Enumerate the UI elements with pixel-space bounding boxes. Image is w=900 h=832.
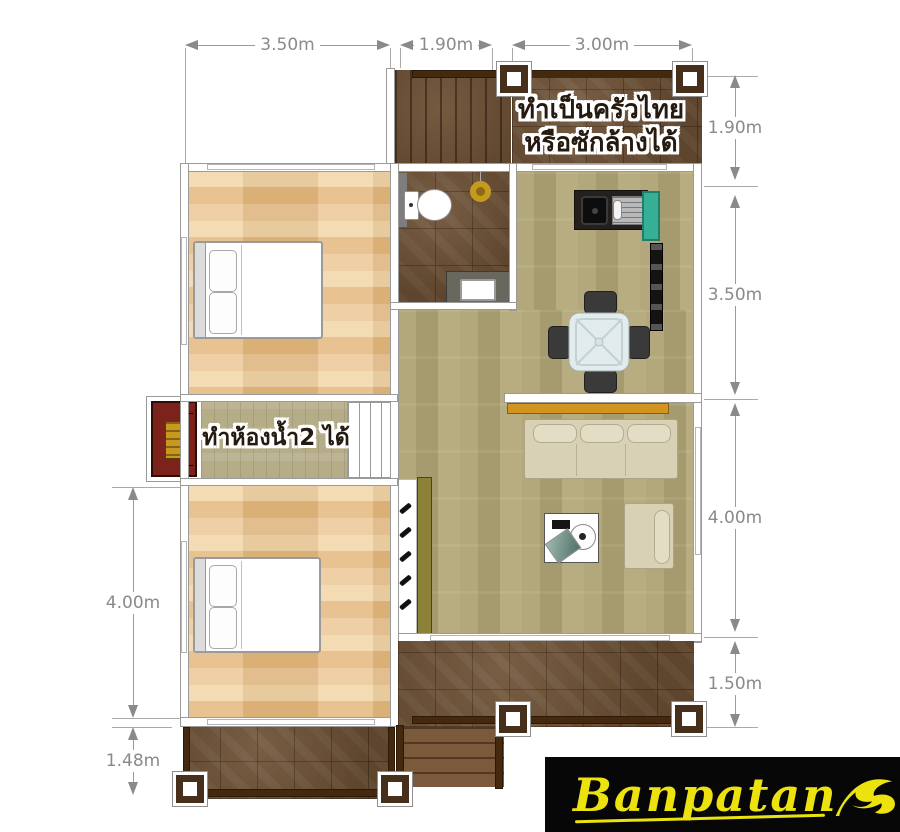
- dimension-right-3: 4.00m: [705, 403, 765, 632]
- sofa-seam: [576, 444, 577, 476]
- extension-line: [390, 48, 391, 68]
- shrine-ornament-icon: [165, 421, 181, 459]
- stair-handrail: [417, 477, 432, 644]
- dimension-right-1: 1.90m: [705, 75, 765, 180]
- extension-line: [185, 48, 186, 163]
- bed: [193, 241, 323, 339]
- armchair: [624, 503, 674, 569]
- window: [207, 719, 375, 725]
- coffee-table: [544, 513, 599, 563]
- sheet-line: [241, 561, 242, 649]
- wall-hall-bedroom2: [180, 478, 398, 486]
- wall-bathroom-bottom: [390, 302, 517, 310]
- floor-drain-icon: [470, 181, 491, 202]
- sofa-cushion: [580, 424, 624, 443]
- shrine-cabinet: [151, 401, 197, 477]
- dimension-left-1: 4.00m: [103, 487, 163, 718]
- floor-plan: 3.50m 1.90m 3.00m 1.90m 3.50m 4.00m 1.50…: [0, 0, 900, 832]
- sofa-cushion: [533, 424, 577, 443]
- dimension-label: 3.50m: [708, 284, 762, 306]
- sliding-door: [532, 164, 667, 170]
- kitchen-annotation-line1: ทำเป็นครัวไทย: [495, 94, 707, 127]
- stairs-edge: [412, 70, 506, 78]
- dimension-label: 3.50m: [255, 37, 319, 53]
- dining-chair: [627, 326, 650, 359]
- extension-line: [112, 718, 180, 719]
- window: [181, 237, 187, 345]
- wall: [386, 68, 395, 166]
- dimension-right-2: 3.50m: [705, 195, 765, 395]
- dimension-label: 4.00m: [708, 507, 762, 529]
- kitchen-annotation: ทำเป็นครัวไทย หรือซักล้างได้: [495, 94, 707, 159]
- dimension-top-3: 3.00m: [512, 37, 692, 53]
- logo-banner: Banpatan: [545, 757, 900, 832]
- deck-bottom-right: [398, 641, 694, 727]
- toilet-button: [409, 203, 413, 207]
- wall-bedroom1-hall: [180, 394, 398, 402]
- sheet-line: [241, 245, 242, 335]
- dining-table: [568, 312, 630, 372]
- extension-line: [692, 48, 693, 62]
- bathroom-annotation: ทำห้องน้ำ2 ได้: [196, 424, 356, 453]
- console-shelf: [507, 403, 669, 414]
- brand-logo: Banpatan: [545, 768, 838, 822]
- dimension-top-2: 1.90m: [400, 37, 492, 53]
- deck-railing: [412, 716, 694, 724]
- sink-basin-icon: [460, 279, 496, 301]
- armchair-back-cushion: [654, 510, 670, 564]
- window: [207, 164, 375, 170]
- dimension-label: 1.50m: [708, 673, 762, 695]
- column-post: [172, 771, 208, 807]
- exterior-stairs: [395, 70, 511, 164]
- extension-line: [704, 186, 758, 187]
- kitchen-annotation-line2: หรือซักล้างได้: [495, 127, 707, 160]
- dimension-label: 3.00m: [570, 37, 634, 53]
- extension-line: [704, 727, 758, 728]
- dimension-label: 1.48m: [106, 750, 160, 772]
- dimension-top-1: 3.50m: [185, 37, 390, 53]
- dimension-label: 4.00m: [106, 592, 160, 614]
- column-post: [671, 701, 707, 737]
- dimension-label: 1.90m: [414, 37, 478, 53]
- deck-railing: [183, 789, 395, 797]
- sofa: [524, 419, 678, 479]
- pillow-icon: [209, 565, 237, 607]
- wall-divider: [504, 393, 702, 403]
- dimension-right-4: 1.50m: [705, 641, 765, 727]
- wall-shelf: [650, 243, 663, 331]
- toilet-icon: [417, 189, 452, 221]
- entry-steps: [398, 727, 504, 787]
- wall-bathroom-right: [509, 163, 517, 311]
- pillow-icon: [209, 607, 237, 649]
- column-post: [496, 61, 532, 97]
- dimension-left-2: 1.48m: [103, 727, 163, 795]
- soap-bottle-icon: [613, 200, 622, 220]
- bed-headboard: [195, 243, 206, 337]
- window: [181, 541, 187, 653]
- swan-flourish-icon: [832, 767, 900, 823]
- pillow-icon: [209, 292, 237, 334]
- window: [695, 427, 701, 555]
- column-post: [495, 701, 531, 737]
- sofa-seam: [625, 444, 626, 476]
- sink-drain: [592, 208, 598, 214]
- extension-line: [704, 399, 758, 400]
- column-post: [672, 61, 708, 97]
- bed-headboard: [195, 559, 206, 651]
- dining-chair: [584, 291, 617, 314]
- pillow-icon: [209, 250, 237, 292]
- sofa-cushion: [627, 424, 671, 443]
- dining-chair: [584, 370, 617, 393]
- dimension-label: 1.90m: [708, 117, 762, 139]
- bed: [193, 557, 321, 653]
- extension-line: [704, 637, 758, 638]
- teal-cabinet: [642, 191, 660, 241]
- wall-right: [693, 163, 702, 643]
- column-post: [377, 771, 413, 807]
